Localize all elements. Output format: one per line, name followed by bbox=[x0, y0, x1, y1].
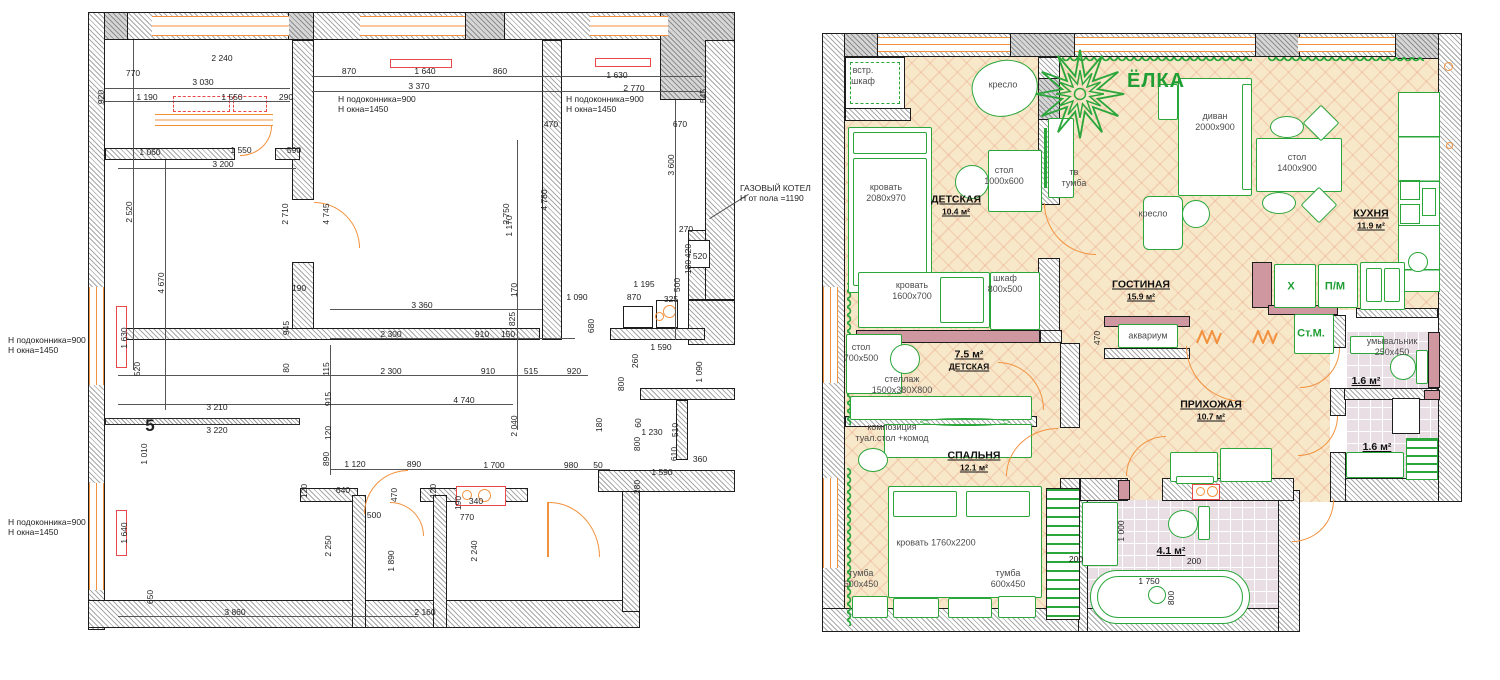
dimension-label: 920 bbox=[96, 90, 106, 104]
furniture bbox=[1384, 268, 1400, 302]
furniture bbox=[940, 277, 984, 323]
furniture-label: тумба 600х450 bbox=[844, 568, 879, 590]
floorplan-canvas: Н подоконника=900 Н окна=1450Н подоконни… bbox=[0, 0, 1500, 680]
dimension-label: 3 600 bbox=[666, 154, 676, 175]
window bbox=[152, 16, 289, 36]
kitchen-sink bbox=[1408, 252, 1428, 272]
dimension-label: 2 710 bbox=[280, 203, 290, 224]
furniture bbox=[893, 491, 957, 517]
furniture bbox=[1148, 586, 1166, 604]
dimension-label: 3 200 bbox=[212, 159, 233, 169]
furniture-label: стол 700х500 bbox=[844, 342, 879, 364]
door-arc bbox=[1300, 348, 1340, 388]
window bbox=[89, 287, 104, 385]
fridge bbox=[1274, 264, 1316, 308]
cabinet bbox=[1220, 448, 1272, 482]
dimension-label: 800 bbox=[632, 437, 642, 451]
furniture-label: диван 2000х900 bbox=[1195, 111, 1235, 133]
dimension-label: 890 bbox=[321, 452, 331, 466]
chair bbox=[1262, 192, 1296, 214]
dimension-label: 1 010 bbox=[139, 443, 149, 464]
dimension-label: 1 630 bbox=[119, 327, 129, 348]
furniture-label: стеллаж 1500х380Х800 bbox=[872, 374, 933, 396]
dimension-label: 3 370 bbox=[408, 81, 429, 91]
radiator-symbol bbox=[1196, 330, 1222, 344]
dimension-label: 200 bbox=[1187, 556, 1201, 566]
wall-segment bbox=[352, 495, 366, 628]
wall-segment bbox=[640, 388, 735, 400]
window bbox=[590, 16, 668, 36]
side-table bbox=[1182, 200, 1210, 228]
dimension-label: 4 670 bbox=[156, 272, 166, 293]
bathroom-sink bbox=[1082, 502, 1118, 566]
window bbox=[155, 114, 273, 126]
dimension-label: 1 590 bbox=[650, 342, 671, 352]
furniture bbox=[893, 598, 939, 618]
dimension-label: 520 bbox=[693, 251, 707, 261]
furniture-label: тв тумба bbox=[1062, 167, 1087, 189]
room-label: ПРИХОЖАЯ10.7 м² bbox=[1180, 399, 1241, 422]
wall-column bbox=[465, 12, 505, 40]
accent-wall bbox=[1118, 480, 1130, 500]
dimension-label: 670 bbox=[673, 119, 687, 129]
wall-column bbox=[1255, 33, 1300, 57]
furniture bbox=[1366, 268, 1382, 302]
dimension-label: 800 bbox=[1166, 591, 1176, 605]
dimension-label: 260 bbox=[630, 354, 640, 368]
dimension-label: 2 240 bbox=[211, 53, 232, 63]
dimension-label: 915 bbox=[323, 392, 333, 406]
furniture-label: умывальник 250х450 bbox=[1367, 336, 1418, 358]
window bbox=[823, 478, 838, 568]
dimension-label: 770 bbox=[460, 512, 474, 522]
chair bbox=[1270, 116, 1304, 138]
room-label: 1.6 м² bbox=[1363, 441, 1392, 453]
dimension-label: 2 240 bbox=[469, 540, 479, 561]
dimension-label: 500 bbox=[367, 510, 381, 520]
door-arc bbox=[549, 502, 600, 557]
dimension-label: 360 bbox=[693, 454, 707, 464]
dimension-label: 910 bbox=[481, 366, 495, 376]
dimension-label: 2 770 bbox=[623, 83, 644, 93]
furniture-label: кровать 2080х970 bbox=[866, 182, 906, 204]
dimension-label: 1 700 bbox=[483, 460, 504, 470]
furniture-label: встр. шкаф bbox=[851, 65, 875, 87]
dimension-label: 3 210 bbox=[206, 402, 227, 412]
dimension-label: 150 bbox=[501, 329, 515, 339]
window bbox=[360, 16, 465, 36]
dimension-label: 545 bbox=[698, 89, 708, 103]
nightstand bbox=[852, 596, 888, 618]
dimension-label: 1 750 bbox=[1138, 576, 1159, 586]
pipe-circle bbox=[1207, 486, 1218, 497]
dimension-label: 610 bbox=[669, 447, 679, 461]
niche-box bbox=[623, 306, 653, 328]
door-arc bbox=[1292, 500, 1334, 542]
furniture-label: композиция туал.стол +комод bbox=[855, 422, 928, 444]
furniture-label: шкаф 800х500 bbox=[988, 273, 1023, 295]
dimension-label: 640 bbox=[336, 485, 350, 495]
furniture-outline bbox=[1422, 188, 1436, 216]
pipe-circle bbox=[1444, 62, 1453, 71]
wall-segment bbox=[292, 40, 314, 200]
furniture-label: тумба 600х450 bbox=[991, 568, 1026, 590]
dimension-label: 2 160 bbox=[414, 607, 435, 617]
furniture-label: П/М bbox=[1325, 280, 1345, 293]
wall-partition bbox=[105, 418, 300, 425]
dimension-label: 470 bbox=[1092, 331, 1102, 345]
wall-segment bbox=[610, 328, 705, 340]
furniture-label: кресло bbox=[1139, 209, 1168, 220]
furniture bbox=[1198, 506, 1210, 540]
dimension-label: 190 bbox=[453, 496, 463, 510]
dimension-label: 1 550 bbox=[230, 145, 251, 155]
door-arc bbox=[390, 502, 424, 536]
dimension-label: 650 bbox=[145, 590, 155, 604]
dimension-label: 980 bbox=[564, 460, 578, 470]
curtain bbox=[1268, 57, 1424, 64]
dimension-label: 1 230 bbox=[641, 427, 662, 437]
dimension-label: 4 740 bbox=[453, 395, 474, 405]
wall-segment bbox=[1330, 452, 1346, 502]
door-leaf bbox=[547, 502, 549, 557]
wall-segment bbox=[1060, 343, 1080, 428]
furniture-label: аквариум bbox=[1128, 331, 1167, 342]
window bbox=[89, 483, 104, 590]
niche-box bbox=[1392, 398, 1420, 434]
dimension-label: 2 040 bbox=[509, 415, 519, 436]
window bbox=[878, 37, 1010, 52]
room-label: СПАЛЬНЯ12.1 м² bbox=[948, 450, 1001, 473]
christmas-tree bbox=[1032, 48, 1128, 140]
furniture bbox=[948, 598, 992, 618]
window bbox=[823, 287, 838, 383]
dimension-label: 120 bbox=[323, 426, 333, 440]
dimension-label: 420 bbox=[683, 244, 693, 258]
dimension-label: 520 bbox=[132, 362, 142, 376]
annotation-note: Н подоконника=900 Н окна=1450 bbox=[338, 94, 416, 114]
dimension-label: 180 bbox=[594, 418, 604, 432]
radiator-symbol bbox=[1252, 330, 1278, 344]
dimension-label: 470 bbox=[389, 488, 399, 502]
dimension-label: 1 630 bbox=[606, 70, 627, 80]
dimension-line bbox=[118, 168, 296, 169]
dimension-label: 770 bbox=[126, 68, 140, 78]
furniture bbox=[1176, 476, 1214, 484]
room-label: КУХНЯ11.9 м² bbox=[1353, 208, 1388, 231]
radiator bbox=[595, 58, 651, 67]
furniture-label: Ст.М. bbox=[1297, 327, 1325, 340]
dimension-label: 120 bbox=[299, 484, 309, 498]
mirror bbox=[920, 418, 1010, 426]
dimension-line bbox=[118, 616, 418, 617]
wall-segment bbox=[845, 108, 911, 121]
furniture-label: Х bbox=[1287, 280, 1294, 293]
furniture-label: ЁЛКА bbox=[1127, 69, 1185, 93]
toilet bbox=[1168, 510, 1198, 538]
bench bbox=[1346, 452, 1404, 478]
dimension-label: 1 550 bbox=[221, 92, 242, 102]
window bbox=[1298, 37, 1395, 52]
dimension-label: 2 750 bbox=[501, 203, 511, 224]
room-label: 7.5 м²ДЕТСКАЯ bbox=[949, 349, 990, 372]
dimension-label: 115 bbox=[321, 362, 331, 376]
dimension-label: 2 250 bbox=[323, 535, 333, 556]
dimension-label: 510 bbox=[670, 423, 680, 437]
dimension-label: 860 bbox=[493, 66, 507, 76]
dimension-label: 5 bbox=[145, 416, 154, 436]
dimension-label: 920 bbox=[567, 366, 581, 376]
pipe-circle bbox=[1196, 487, 1205, 496]
furniture-label: кресло bbox=[989, 80, 1018, 91]
room-label: ГОСТИНАЯ15.9 м² bbox=[1112, 279, 1170, 302]
dimension-label: 590 bbox=[287, 145, 301, 155]
furniture-label: кровать 1600х700 bbox=[892, 280, 932, 302]
dimension-label: 870 bbox=[627, 292, 641, 302]
armchair bbox=[1143, 196, 1183, 250]
dimension-label: 3 030 bbox=[192, 77, 213, 87]
dimension-label: 515 bbox=[524, 366, 538, 376]
dimension-label: 80 bbox=[281, 363, 291, 372]
furniture bbox=[853, 132, 927, 154]
door-arc bbox=[1298, 416, 1338, 456]
dimension-label: 1 090 bbox=[694, 361, 704, 382]
dimension-label: 680 bbox=[586, 319, 596, 333]
room-label: 4.1 м² bbox=[1157, 545, 1186, 557]
wall-segment bbox=[1040, 330, 1062, 343]
annotation-note: Н подоконника=900 Н окна=1450 bbox=[8, 335, 86, 355]
dimension-label: 1 890 bbox=[386, 550, 396, 571]
room-label: ДЕТСКАЯ10.4 м² bbox=[931, 194, 981, 217]
furniture bbox=[1242, 84, 1252, 190]
furniture-outline bbox=[1400, 204, 1420, 224]
dimension-label: 1 640 bbox=[414, 66, 435, 76]
dimension-label: 1 060 bbox=[139, 147, 160, 157]
dimension-label: 4 780 bbox=[539, 189, 549, 210]
dimension-line bbox=[330, 338, 575, 339]
dimension-label: 825 bbox=[507, 312, 517, 326]
dimension-label: 120 bbox=[428, 484, 438, 498]
dimension-label: 2 300 bbox=[380, 366, 401, 376]
furniture bbox=[853, 158, 927, 286]
wall-column bbox=[288, 12, 314, 40]
annotation-note: Н подоконника=900 Н окна=1450 bbox=[8, 517, 86, 537]
dimension-label: 910 bbox=[475, 329, 489, 339]
wall-segment bbox=[1104, 348, 1190, 359]
pipe-circle bbox=[1446, 142, 1453, 149]
wall-segment bbox=[622, 475, 640, 612]
dimension-label: 500 bbox=[672, 278, 682, 292]
furniture-label: стол 1400х900 bbox=[1277, 152, 1317, 174]
dimension-label: 340 bbox=[469, 496, 483, 506]
dimension-label: 200 bbox=[1069, 554, 1083, 564]
accent-wall bbox=[1252, 262, 1272, 308]
dimension-label: 1 090 bbox=[566, 292, 587, 302]
nightstand bbox=[998, 596, 1036, 618]
dimension-label: 1 120 bbox=[344, 459, 365, 469]
dimension-line bbox=[330, 309, 542, 310]
dimension-label: 890 bbox=[407, 459, 421, 469]
dimension-line bbox=[312, 76, 702, 77]
annotation-note: Н подоконника=900 Н окна=1450 bbox=[566, 94, 644, 114]
dimension-label: 470 bbox=[544, 119, 558, 129]
chair bbox=[890, 344, 920, 374]
shelves bbox=[1406, 438, 1438, 480]
accent-wall bbox=[1424, 390, 1440, 400]
wall-segment bbox=[1038, 258, 1060, 334]
accent-wall bbox=[1428, 332, 1440, 388]
dimension-label: 290 bbox=[279, 92, 293, 102]
dimension-label: 1 190 bbox=[136, 92, 157, 102]
dimension-label: 180 bbox=[683, 260, 693, 274]
dimension-label: 50 bbox=[593, 460, 602, 470]
sofa bbox=[1178, 78, 1252, 196]
dimension-label: 4 745 bbox=[321, 203, 331, 224]
dimension-label: 170 bbox=[509, 283, 519, 297]
furniture-label: кровать 1760х2200 bbox=[896, 538, 975, 549]
dimension-label: 945 bbox=[281, 321, 291, 335]
dimension-label: 3 220 bbox=[206, 425, 227, 435]
room-label: 1.6 м² bbox=[1352, 375, 1381, 387]
dimension-label: 1 195 bbox=[633, 279, 654, 289]
annotation-note: ГАЗОВЫЙ КОТЕЛ Н от пола =1190 bbox=[740, 183, 811, 203]
toilet bbox=[1390, 354, 1416, 380]
dimension-label: 325 bbox=[664, 294, 678, 304]
furniture-outline bbox=[1400, 180, 1420, 200]
furniture bbox=[1416, 350, 1428, 384]
dimension-label: 270 bbox=[679, 224, 693, 234]
dimension-label: 2 520 bbox=[124, 201, 134, 222]
wall-segment bbox=[1438, 33, 1462, 502]
furniture bbox=[966, 491, 1030, 517]
dimension-label: 3 360 bbox=[411, 300, 432, 310]
dimension-label: 800 bbox=[616, 377, 626, 391]
dimension-label: 2 300 bbox=[380, 329, 401, 339]
dimension-label: 190 bbox=[292, 283, 306, 293]
dimension-label: 1 590 bbox=[651, 467, 672, 477]
furniture-label: стол 1000х600 bbox=[984, 165, 1024, 187]
dimension-label: 280 bbox=[632, 480, 642, 494]
stool bbox=[858, 448, 888, 472]
dimension-label: 3 860 bbox=[224, 607, 245, 617]
dimension-label: 1 640 bbox=[119, 522, 129, 543]
dimension-label: 1 000 bbox=[1116, 520, 1126, 541]
dimension-label: 870 bbox=[342, 66, 356, 76]
